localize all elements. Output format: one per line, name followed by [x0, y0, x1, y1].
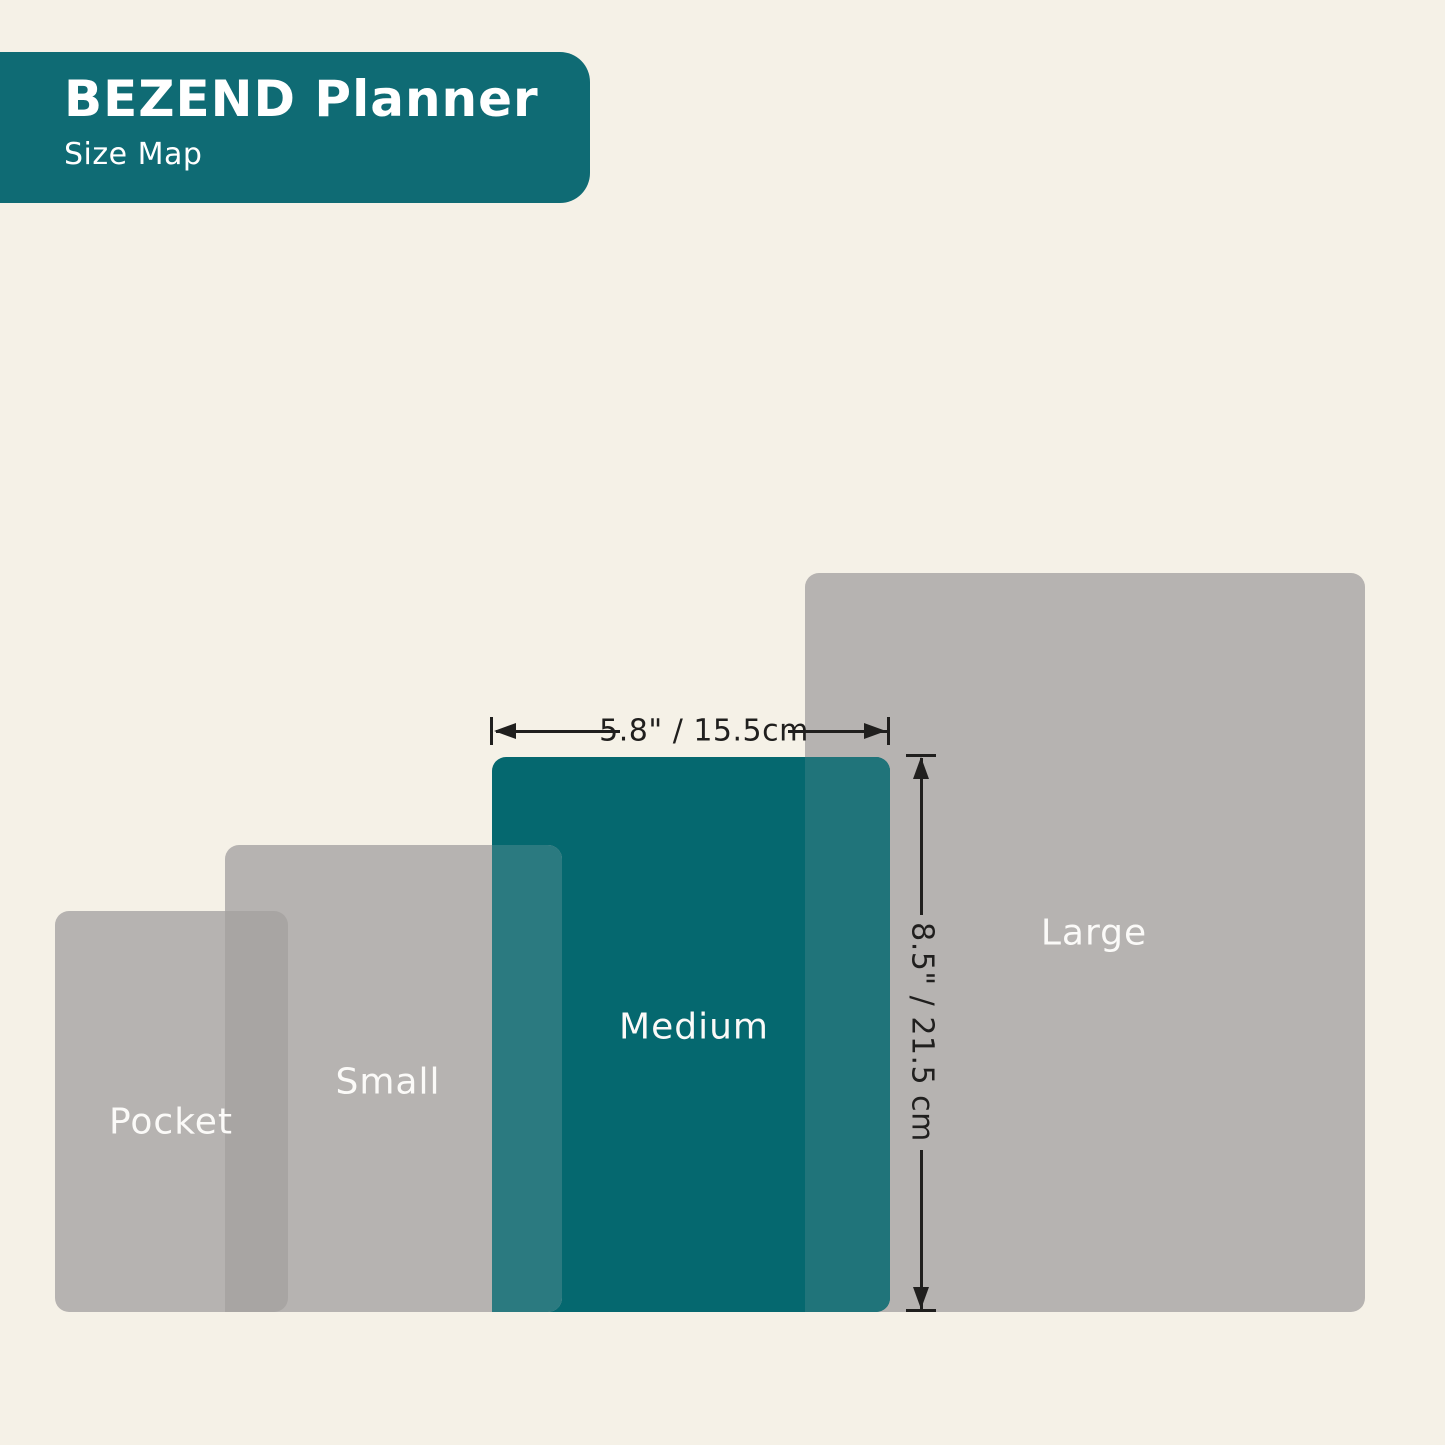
width-dimension-tick-right: [887, 717, 890, 745]
overlap-small-medium: [492, 845, 562, 1312]
size-label-pocket: Pocket: [109, 1102, 233, 1143]
width-dimension-tick-left: [490, 717, 493, 745]
height-dimension-tick-bottom: [906, 1309, 936, 1312]
width-dimension-label: 5.8" / 15.5cm: [599, 714, 809, 749]
header-badge: BEZEND Planner Size Map: [0, 52, 590, 203]
size-label-small: Small: [336, 1062, 441, 1103]
height-dimension-line-top: [920, 758, 923, 915]
size-label-large: Large: [1041, 913, 1147, 954]
page-subtitle: Size Map: [64, 137, 590, 172]
size-map-canvas: BEZEND Planner Size Map Pocket Small Med…: [0, 0, 1445, 1445]
overlap-pocket-small: [225, 911, 288, 1312]
height-dimension-label: 8.5" / 21.5 cm: [905, 922, 940, 1142]
height-dimension-line-bottom: [920, 1150, 923, 1309]
overlap-medium-large: [805, 757, 890, 1312]
size-label-medium: Medium: [619, 1007, 769, 1048]
page-title: BEZEND Planner: [64, 72, 590, 127]
